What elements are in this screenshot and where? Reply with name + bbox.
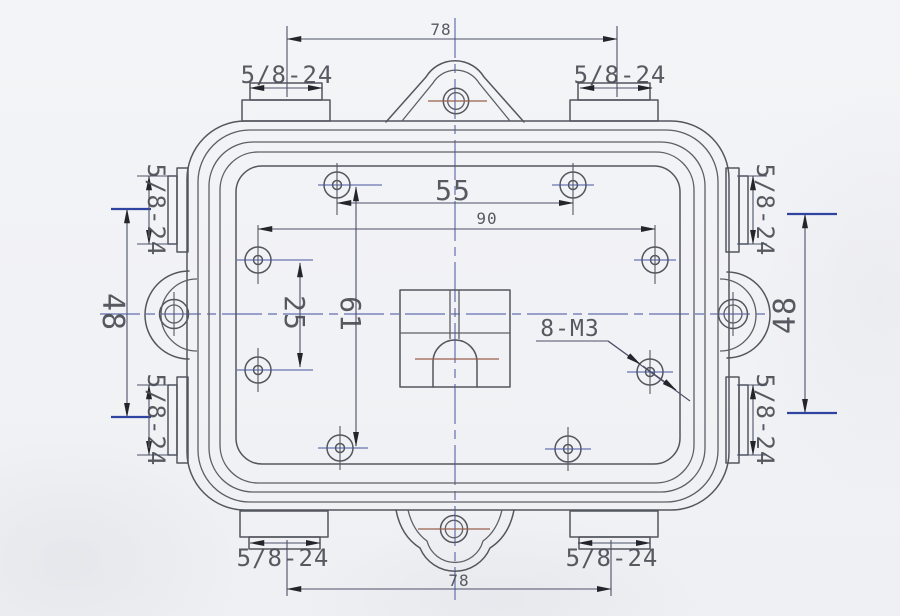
enclosure-outline-group [145,61,770,571]
screw-hole-2 [552,163,594,215]
left-mounting-ear-inner [161,279,197,351]
screw-hole-3 [237,225,313,284]
screw-hole-4 [634,225,676,284]
callout-leader-arrow-2 [643,366,676,390]
screw-hole-5 [237,348,313,392]
port-right-upper-tip [739,176,748,244]
port-right-upper-base [726,168,739,252]
port-bottom-right-base [570,511,658,537]
dim-bottom-width-label: 78 [448,571,469,590]
dim-top-width-label: 78 [430,20,451,39]
port-right-lower-tip [739,385,748,455]
thread-label-bottom-left: 5/8-24 [237,544,330,572]
thread-label-left-upper: 5/8-24 [142,164,170,257]
right-mounting-ear-inner [720,279,756,351]
port-top-left-base [242,100,330,121]
thread-label-top-right: 5/8-24 [574,61,667,89]
dim-48-left-label: 48 [95,293,130,331]
centerlines-group [100,18,768,600]
drawing-sheet: 78 78 55 90 61 25 48 48 8-M3 5/8-24 5/8-… [0,0,900,616]
dim-25-label: 25 [278,295,311,331]
thread-label-right-lower: 5/8-24 [751,374,779,467]
thread-label-top-left: 5/8-24 [241,61,334,89]
dim-48-right-label: 48 [768,296,803,334]
thread-label-left-lower: 5/8-24 [142,374,170,467]
dim-61-label: 61 [334,296,367,332]
holes-group [160,88,748,542]
thread-label-bottom-right: 5/8-24 [566,544,659,572]
top-tab-hole [428,88,487,113]
dim-55-label: 55 [435,174,471,207]
port-top-right-base [570,100,658,121]
port-bottom-left-base [240,511,328,537]
dim-90-label: 90 [476,209,497,228]
thread-label-right-upper: 5/8-24 [751,164,779,257]
screw-hole-1 [318,163,382,215]
bottom-tab-hole [418,516,490,543]
callout-leader-arrow-1 [608,341,640,364]
enclosure-drawing-svg: 78 78 55 90 61 25 48 48 8-M3 5/8-24 5/8-… [0,0,900,616]
callout-8m3-label: 8-M3 [540,316,599,342]
port-right-lower-base [726,377,739,463]
